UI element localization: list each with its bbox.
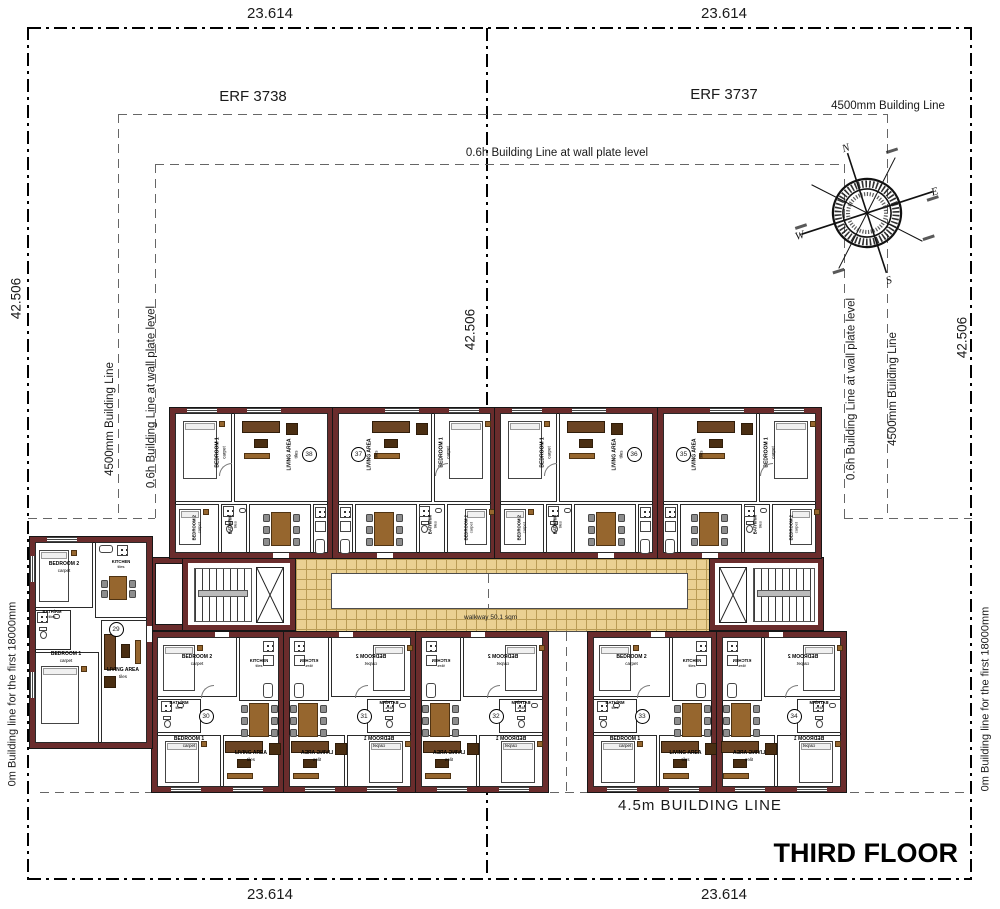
room-label-bedroom2: BEDROOM 2carpet: [347, 655, 395, 666]
side-table: [203, 509, 209, 515]
coffee-table: [121, 644, 130, 658]
room-label-bedroom2: BEDROOM 2carpet: [608, 655, 656, 666]
pillow: [601, 647, 629, 654]
stove: [315, 507, 326, 518]
stove: [117, 545, 128, 556]
chair: [452, 729, 459, 737]
kitchen-sink: [665, 539, 675, 554]
toilet: [164, 720, 171, 728]
window: [30, 672, 35, 698]
chair: [674, 717, 681, 725]
chair: [241, 717, 248, 725]
room-finish-label: tiles: [591, 706, 639, 711]
chair: [271, 729, 278, 737]
pillow: [375, 647, 403, 654]
chair: [721, 538, 728, 546]
toilet: [816, 720, 823, 728]
room-label-bath: BATH/RMtiles: [591, 701, 639, 710]
chair: [366, 538, 373, 546]
room-label-living: LIVING AREAtiles: [425, 751, 473, 762]
chair: [618, 538, 625, 546]
room-label-bedroom1: BEDROOM 1carpet: [42, 652, 90, 663]
chair: [674, 729, 681, 737]
stove: [696, 641, 707, 652]
window: [512, 408, 542, 413]
chair: [691, 538, 698, 546]
room-finish-label: tiles: [725, 757, 773, 762]
room-label-bedroom2: BEDROOM 2carpet: [192, 504, 201, 552]
room-label-bedroom2: BEDROOM 2carpet: [779, 655, 827, 666]
unit-number-badge: 32: [489, 709, 504, 724]
window: [449, 408, 479, 413]
chair: [618, 526, 625, 534]
door-opening: [215, 632, 229, 637]
room-label-living: LIVING AREAtiles: [725, 751, 773, 762]
chair: [704, 717, 711, 725]
chair: [704, 729, 711, 737]
room-label-living: LIVING AREAtiles: [662, 751, 710, 762]
basin: [564, 508, 571, 513]
room-finish-label: carpet: [522, 504, 527, 552]
room-finish-label: tiles: [373, 430, 378, 478]
chair: [422, 717, 429, 725]
room-label-bedroom1: BEDROOM 1carpet: [355, 737, 403, 748]
room-finish-label: carpet: [173, 661, 221, 666]
sofa: [242, 421, 280, 433]
unit-number-badge: 35: [676, 447, 691, 462]
door-opening: [471, 632, 485, 637]
window: [499, 787, 529, 792]
window: [367, 787, 397, 792]
room-label-kitchen: KITCHENtiles: [285, 659, 333, 668]
stove: [294, 641, 305, 652]
pillow: [776, 423, 806, 430]
chair: [271, 717, 278, 725]
tv-unit: [663, 773, 689, 779]
door-opening: [702, 553, 718, 558]
fridge: [340, 521, 351, 532]
room-label-bath: BATH/RMtiles: [155, 701, 203, 710]
unit-number-badge: 36: [627, 447, 642, 462]
chair: [721, 514, 728, 522]
sofa: [104, 634, 116, 670]
tv-unit: [425, 773, 451, 779]
room-finish-label: carpet: [42, 658, 90, 663]
stove: [665, 507, 676, 518]
pillow: [451, 423, 481, 430]
chair: [704, 705, 711, 713]
room-finish-label: tiles: [662, 757, 710, 762]
fridge: [640, 521, 651, 532]
tv-unit: [135, 640, 141, 664]
room-finish-label: carpet: [165, 743, 213, 748]
side-table: [537, 741, 543, 747]
side-table: [485, 421, 491, 427]
sofa: [567, 421, 605, 433]
room-finish-label: tiles: [425, 757, 473, 762]
chair: [588, 526, 595, 534]
unit-33: BEDROOM 2carpetKITCHENtilesBATH/RMtilesB…: [588, 632, 717, 792]
room-finish-label: carpet: [601, 743, 649, 748]
window: [187, 408, 217, 413]
stove: [340, 507, 351, 518]
chair: [366, 526, 373, 534]
unit-number-badge: 31: [357, 709, 372, 724]
chair: [422, 729, 429, 737]
unit-number-badge: 34: [787, 709, 802, 724]
chair: [588, 538, 595, 546]
chair: [320, 729, 327, 737]
chair: [129, 590, 136, 598]
stove: [640, 507, 651, 518]
door-opening: [598, 553, 614, 558]
kitchen-sink: [426, 683, 436, 698]
chair: [366, 514, 373, 522]
room-label-bedroom2: BEDROOM 2carpet: [173, 655, 221, 666]
dining-table: [596, 512, 616, 546]
room-finish-label: carpet: [779, 661, 827, 666]
window: [247, 408, 281, 413]
room-finish-label: tiles: [99, 674, 147, 679]
room-finish-label: carpet: [785, 743, 833, 748]
room-finish-label: carpet: [40, 568, 88, 573]
room-label-bath: BATH/RMtiles: [365, 701, 413, 710]
kitchen-sink: [315, 539, 325, 554]
kitchen-sink: [99, 545, 113, 553]
chair: [290, 729, 297, 737]
pillow: [510, 423, 540, 430]
side-table: [405, 741, 411, 747]
stove: [727, 641, 738, 652]
kitchen-sink: [696, 683, 706, 698]
unit-38: BEDROOM 1carpetLIVING AREAtilesBEDROOM 2…: [170, 408, 333, 558]
coffee-table: [384, 439, 398, 448]
room-finish-label: tiles: [758, 501, 763, 549]
dining-table: [430, 703, 450, 737]
unit-34: BEDROOM 2carpetKITCHENtilesBATH/RMtilesB…: [717, 632, 846, 792]
dining-table: [682, 703, 702, 737]
chair: [101, 580, 108, 588]
unit-number-badge: 30: [199, 709, 214, 724]
room-finish-label: tiles: [293, 757, 341, 762]
stove: [426, 641, 437, 652]
chair: [263, 526, 270, 534]
tv-unit: [227, 773, 253, 779]
side-table: [835, 741, 841, 747]
room-label-bath: BATH/RMtiles: [228, 501, 237, 549]
room-finish-label: tiles: [668, 664, 716, 669]
chair: [721, 526, 728, 534]
window: [774, 408, 804, 413]
room-finish-label: tiles: [417, 664, 465, 669]
pillow: [805, 647, 833, 654]
room-finish-label: tiles: [227, 757, 275, 762]
coffee-table: [579, 439, 593, 448]
room-label-living: LIVING AREAtiles: [367, 430, 378, 478]
room-finish-label: tiles: [433, 501, 438, 549]
room-finish-label: tiles: [293, 430, 298, 478]
chair: [263, 514, 270, 522]
chair: [396, 526, 403, 534]
unit-32: BEDROOM 2carpetKITCHENtilesBATH/RMtilesB…: [416, 632, 548, 792]
unit-37: BEDROOM 1carpetLIVING AREAtilesBEDROOM 2…: [333, 408, 496, 558]
door-opening: [769, 632, 783, 637]
pillow: [185, 423, 215, 430]
window: [607, 787, 637, 792]
coffee-table: [254, 439, 268, 448]
dining-table: [374, 512, 394, 546]
pillow: [43, 668, 77, 675]
coffee-table: [709, 439, 723, 448]
kitchen-sink: [294, 683, 304, 698]
stove: [263, 641, 274, 652]
unit-31: BEDROOM 2carpetKITCHENtilesBATH/RMtilesB…: [284, 632, 416, 792]
unit-number-badge: 37: [351, 447, 366, 462]
basin: [239, 508, 246, 513]
chair: [271, 705, 278, 713]
chair: [241, 705, 248, 713]
kitchen-table: [109, 576, 127, 600]
room-label-living: LIVING AREAtiles: [288, 430, 299, 478]
chair: [241, 729, 248, 737]
dining-table: [271, 512, 291, 546]
toilet: [386, 720, 393, 728]
door-opening: [377, 553, 393, 558]
room-label-kitchen: KITCHENtiles: [235, 659, 283, 668]
unit-number-badge: 33: [635, 709, 650, 724]
side-table: [544, 421, 550, 427]
pillow: [165, 647, 193, 654]
chair: [101, 590, 108, 598]
room-finish-label: tiles: [155, 706, 203, 711]
chair: [290, 705, 297, 713]
chair: [753, 705, 760, 713]
kitchen-sink: [263, 683, 273, 698]
window: [385, 408, 419, 413]
room-finish-label: tiles: [618, 430, 623, 478]
side-table: [71, 550, 77, 556]
unit-29: BEDROOM 2carpetKITCHENtilesBATH/RMtilesB…: [30, 537, 152, 748]
room-label-bedroom1: BEDROOM 1carpet: [785, 737, 833, 748]
room-label-kitchen: KITCHENtiles: [97, 560, 145, 569]
room-label-kitchen: KITCHENtiles: [668, 659, 716, 668]
room-finish-label: tiles: [285, 664, 333, 669]
toilet: [600, 720, 607, 728]
chair: [293, 538, 300, 546]
side-table: [633, 645, 639, 651]
room-finish-label: tiles: [698, 430, 703, 478]
chair: [263, 538, 270, 546]
fridge: [665, 521, 676, 532]
armchair: [741, 423, 753, 435]
chair: [753, 729, 760, 737]
window: [797, 787, 827, 792]
room-finish-label: carpet: [469, 504, 474, 552]
room-label-kitchen: KITCHENtiles: [718, 659, 766, 668]
room-finish-label: tiles: [718, 664, 766, 669]
window: [437, 787, 467, 792]
dining-table: [731, 703, 751, 737]
room-label-bath: BATH/RMtiles: [753, 501, 762, 549]
room-finish-label: tiles: [233, 501, 238, 549]
room-finish-label: carpet: [355, 743, 403, 748]
chair: [588, 514, 595, 522]
side-table: [489, 509, 495, 515]
window: [305, 787, 335, 792]
side-table: [810, 421, 816, 427]
chair: [723, 705, 730, 713]
armchair: [416, 423, 428, 435]
side-table: [219, 421, 225, 427]
room-label-bedroom2: BEDROOM 2carpet: [464, 504, 473, 552]
room-label-bedroom1: BEDROOM 1carpet: [165, 737, 213, 748]
room-label-kitchen: KITCHENtiles: [417, 659, 465, 668]
room-finish-label: carpet: [197, 504, 202, 552]
chair: [618, 514, 625, 522]
chair: [290, 717, 297, 725]
door-opening: [273, 553, 289, 558]
chair: [396, 514, 403, 522]
unit-30: BEDROOM 2carpetKITCHENtilesBATH/RMtilesB…: [152, 632, 284, 792]
kitchen-sink: [340, 539, 350, 554]
room-finish-label: carpet: [794, 504, 799, 552]
chair: [691, 526, 698, 534]
room-finish-label: carpet: [487, 743, 535, 748]
floor-plan-sheet: 23.614 23.614 23.614 23.614 ERF 3738 ERF…: [0, 0, 1000, 909]
chair: [674, 705, 681, 713]
door-opening: [147, 626, 152, 642]
room-label-bedroom2: BEDROOM 2carpet: [517, 504, 526, 552]
chair: [452, 705, 459, 713]
room-finish-label: tiles: [365, 706, 413, 711]
door-opening: [651, 632, 665, 637]
room-label-bath: BATH/RMtiles: [28, 610, 76, 619]
side-table: [837, 645, 843, 651]
room-finish-label: carpet: [347, 661, 395, 666]
toilet: [40, 631, 47, 639]
room-label-living: LIVING AREAtiles: [99, 668, 147, 679]
room-finish-label: tiles: [497, 706, 545, 711]
tv-unit: [293, 773, 319, 779]
tv-unit: [244, 453, 270, 459]
room-label-living: LIVING AREAtiles: [293, 751, 341, 762]
window: [233, 787, 263, 792]
dining-table: [699, 512, 719, 546]
unit-36: BEDROOM 1carpetLIVING AREAtilesBEDROOM 2…: [495, 408, 658, 558]
chair: [753, 717, 760, 725]
window: [710, 408, 744, 413]
room-label-bath: BATH/RMtiles: [553, 501, 562, 549]
kitchen-sink: [727, 683, 737, 698]
chair: [723, 729, 730, 737]
room-finish-label: tiles: [795, 706, 843, 711]
side-table: [197, 645, 203, 651]
room-label-living: LIVING AREAtiles: [692, 430, 703, 478]
room-label-bedroom2: BEDROOM 2carpet: [40, 562, 88, 573]
chair: [422, 705, 429, 713]
room-label-bedroom1: BEDROOM 1carpet: [487, 737, 535, 748]
window: [572, 408, 606, 413]
door-opening: [339, 632, 353, 637]
chair: [452, 717, 459, 725]
room-finish-label: tiles: [235, 664, 283, 669]
chair: [320, 717, 327, 725]
fridge: [315, 521, 326, 532]
room-finish-label: carpet: [608, 661, 656, 666]
window: [47, 537, 77, 542]
chair: [293, 526, 300, 534]
room-finish-label: tiles: [97, 565, 145, 570]
side-table: [407, 645, 413, 651]
chair: [129, 580, 136, 588]
pillow: [507, 647, 535, 654]
side-table: [539, 645, 545, 651]
room-label-living: LIVING AREAtiles: [227, 751, 275, 762]
room-label-living: LIVING AREAtiles: [613, 430, 624, 478]
unit-number-badge: 29: [109, 622, 124, 637]
apartment-units-layer: BEDROOM 1carpetLIVING AREAtilesBEDROOM 2…: [0, 0, 1000, 909]
window: [735, 787, 765, 792]
pillow: [41, 552, 67, 559]
chair: [723, 717, 730, 725]
window: [669, 787, 699, 792]
unit-number-badge: 38: [302, 447, 317, 462]
dining-table: [298, 703, 318, 737]
room-label-bedroom2: BEDROOM 2carpet: [789, 504, 798, 552]
room-finish-label: tiles: [558, 501, 563, 549]
dining-table: [249, 703, 269, 737]
room-label-bedroom2: BEDROOM 2carpet: [479, 655, 527, 666]
tv-unit: [569, 453, 595, 459]
tv-unit: [723, 773, 749, 779]
unit-35: BEDROOM 1carpetLIVING AREAtilesBEDROOM 2…: [658, 408, 821, 558]
side-table: [814, 509, 820, 515]
room-finish-label: tiles: [28, 615, 76, 620]
side-table: [528, 509, 534, 515]
toilet: [518, 720, 525, 728]
chair: [396, 538, 403, 546]
kitchen-sink: [640, 539, 650, 554]
room-label-bedroom1: BEDROOM 1carpet: [601, 737, 649, 748]
chair: [293, 514, 300, 522]
chair: [691, 514, 698, 522]
window: [171, 787, 201, 792]
room-label-bath: BATH/RMtiles: [428, 501, 437, 549]
room-finish-label: carpet: [479, 661, 527, 666]
side-table: [81, 666, 87, 672]
chair: [320, 705, 327, 713]
room-label-bath: BATH/RMtiles: [497, 701, 545, 710]
window: [30, 556, 35, 582]
room-label-bath: BATH/RMtiles: [795, 701, 843, 710]
